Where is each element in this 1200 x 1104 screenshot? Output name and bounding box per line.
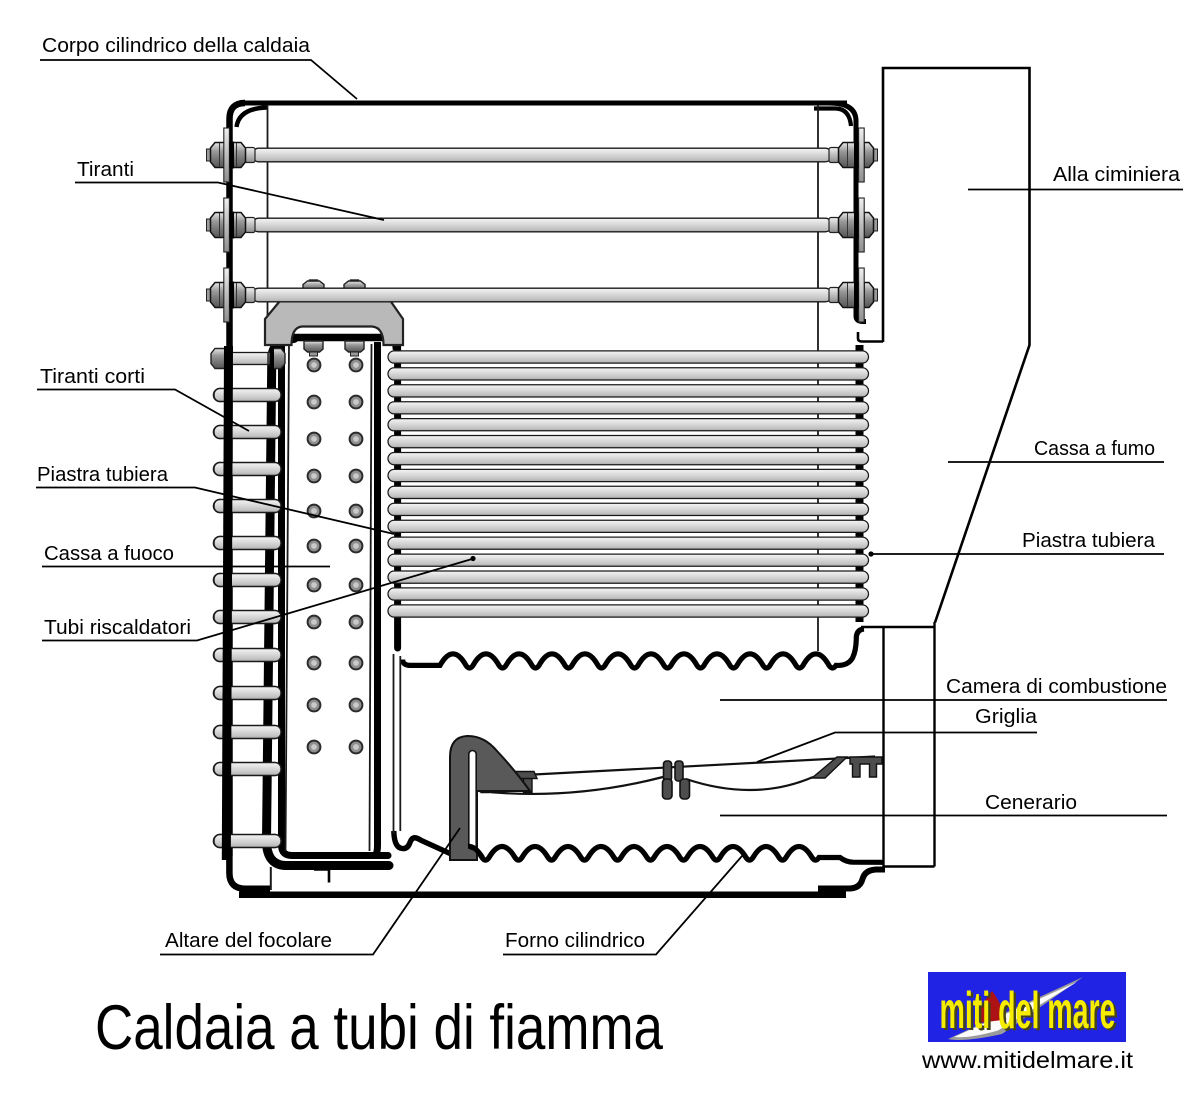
svg-text:Cenerario: Cenerario (985, 792, 1077, 814)
svg-text:Tubi riscaldatori: Tubi riscaldatori (44, 617, 191, 639)
svg-text:Piastra tubiera: Piastra tubiera (37, 464, 169, 486)
svg-text:Forno cilindrico: Forno cilindrico (505, 930, 645, 952)
svg-text:Tiranti: Tiranti (77, 159, 134, 181)
svg-text:Altare del focolare: Altare del focolare (165, 930, 332, 952)
svg-text:Cassa a fumo: Cassa a fumo (1034, 438, 1155, 460)
svg-text:Cassa a fuoco: Cassa a fuoco (44, 543, 174, 565)
svg-text:Corpo cilindrico della caldaia: Corpo cilindrico della caldaia (42, 35, 311, 57)
svg-text:miti del mare: miti del mare (940, 982, 1116, 1040)
svg-text:Alla ciminiera: Alla ciminiera (1053, 164, 1181, 186)
svg-text:Griglia: Griglia (975, 706, 1038, 728)
svg-text:Tiranti corti: Tiranti corti (40, 366, 145, 388)
svg-text:www.mitidelmare.it: www.mitidelmare.it (921, 1047, 1134, 1073)
svg-text:Caldaia a tubi di fiamma: Caldaia a tubi di fiamma (95, 993, 664, 1063)
svg-text:Camera di combustione: Camera di combustione (946, 676, 1167, 698)
svg-text:Piastra tubiera: Piastra tubiera (1022, 530, 1156, 552)
